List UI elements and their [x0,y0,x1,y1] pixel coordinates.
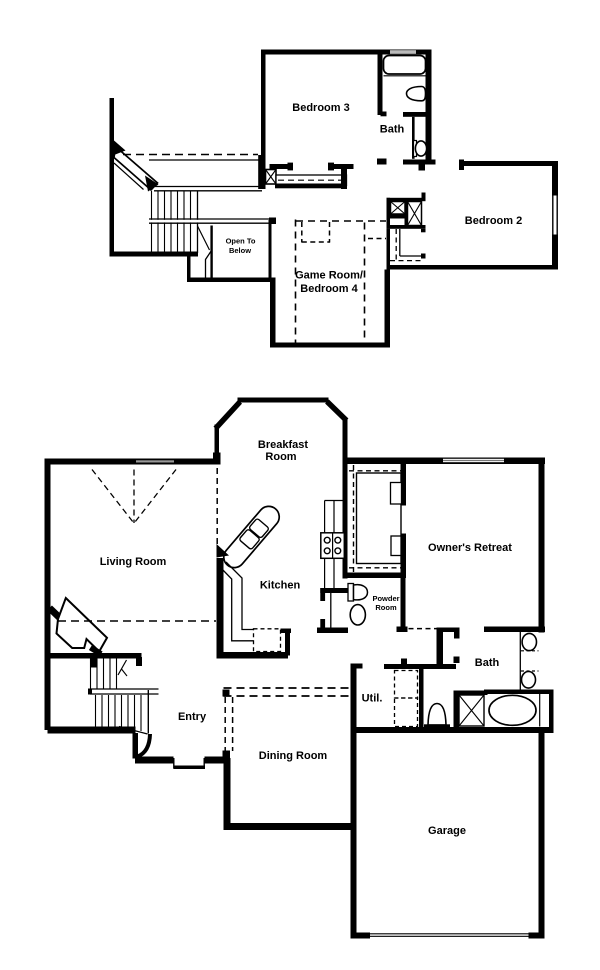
svg-text:Garage: Garage [428,825,466,837]
svg-text:Bedroom 3: Bedroom 3 [292,102,349,114]
svg-text:Bedroom 4: Bedroom 4 [300,283,358,295]
svg-text:Breakfast: Breakfast [258,439,308,451]
svg-text:Open To: Open To [226,237,256,246]
svg-text:Bath: Bath [475,657,500,669]
svg-text:Owner's Retreat: Owner's Retreat [428,542,512,554]
svg-text:Dining Room: Dining Room [259,750,328,762]
svg-text:Game Room/: Game Room/ [295,270,363,282]
svg-text:Util.: Util. [362,693,383,705]
svg-text:Entry: Entry [178,711,207,723]
svg-text:Room: Room [375,603,397,612]
svg-text:Living Room: Living Room [100,556,167,568]
svg-text:Bath: Bath [380,124,405,136]
svg-text:Room: Room [265,451,296,463]
svg-text:Powder: Powder [372,594,399,603]
svg-text:Bedroom 2: Bedroom 2 [465,215,522,227]
svg-text:Kitchen: Kitchen [260,580,301,592]
svg-text:Below: Below [229,246,251,255]
